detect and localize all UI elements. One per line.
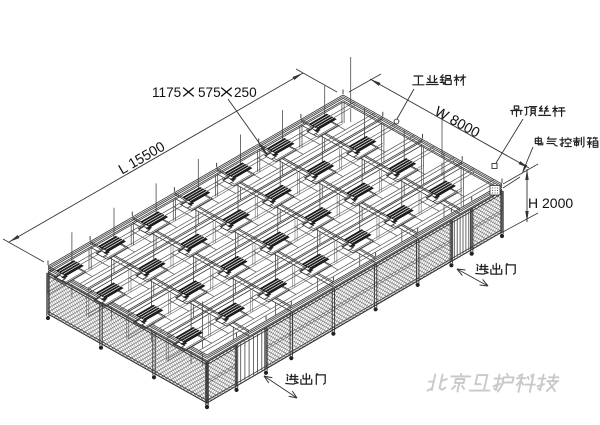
svg-text:575: 575 [198, 85, 221, 100]
svg-text:H 2000: H 2000 [528, 195, 573, 211]
svg-text:1175: 1175 [152, 85, 181, 100]
svg-text:250: 250 [234, 85, 257, 100]
